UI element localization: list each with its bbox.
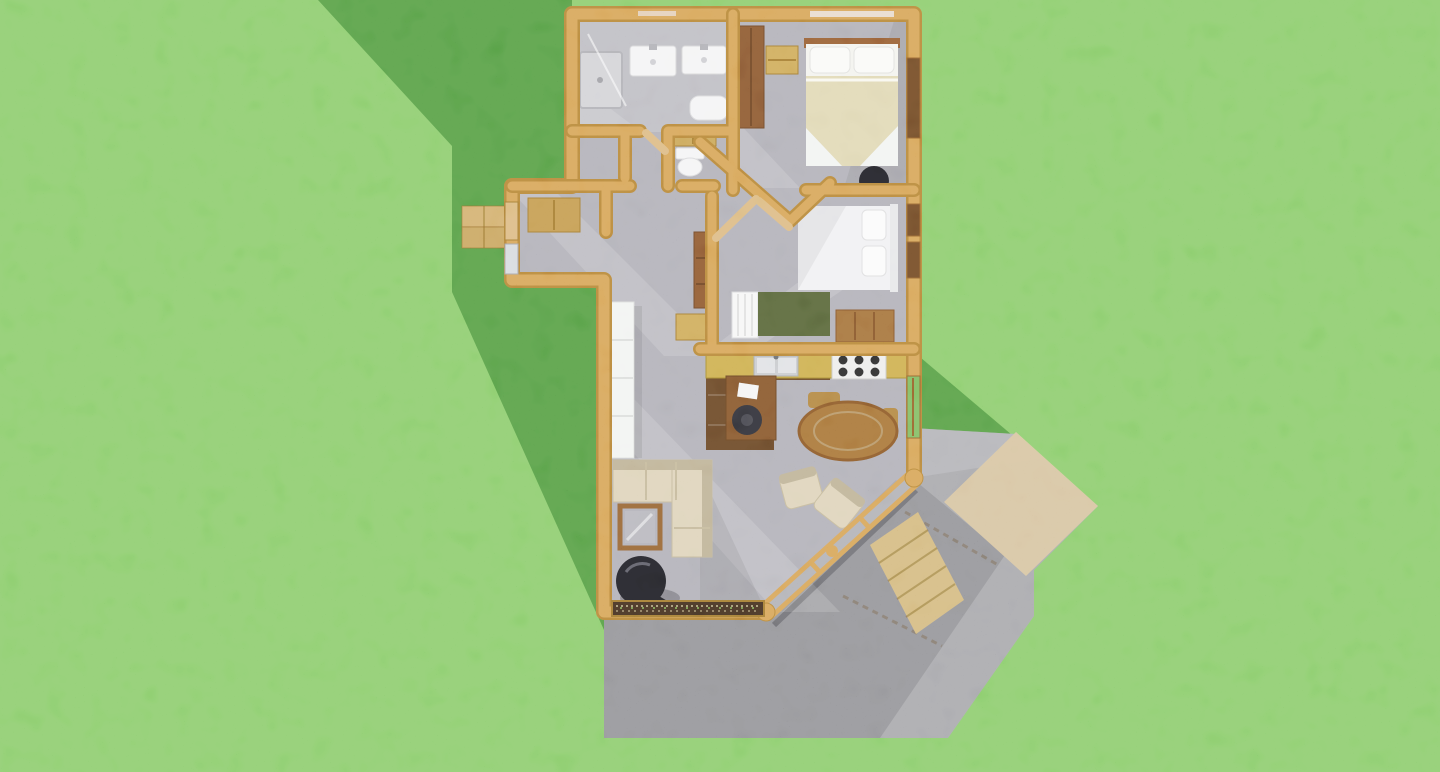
grain-texture bbox=[0, 0, 1440, 772]
render-viewport[interactable]: Top-down 3D dollhouse rendering of a sma… bbox=[0, 0, 1440, 772]
texture-overlays bbox=[0, 0, 1440, 772]
floor-plan-3d-view[interactable]: Top-down 3D dollhouse rendering of a sma… bbox=[0, 0, 1440, 772]
